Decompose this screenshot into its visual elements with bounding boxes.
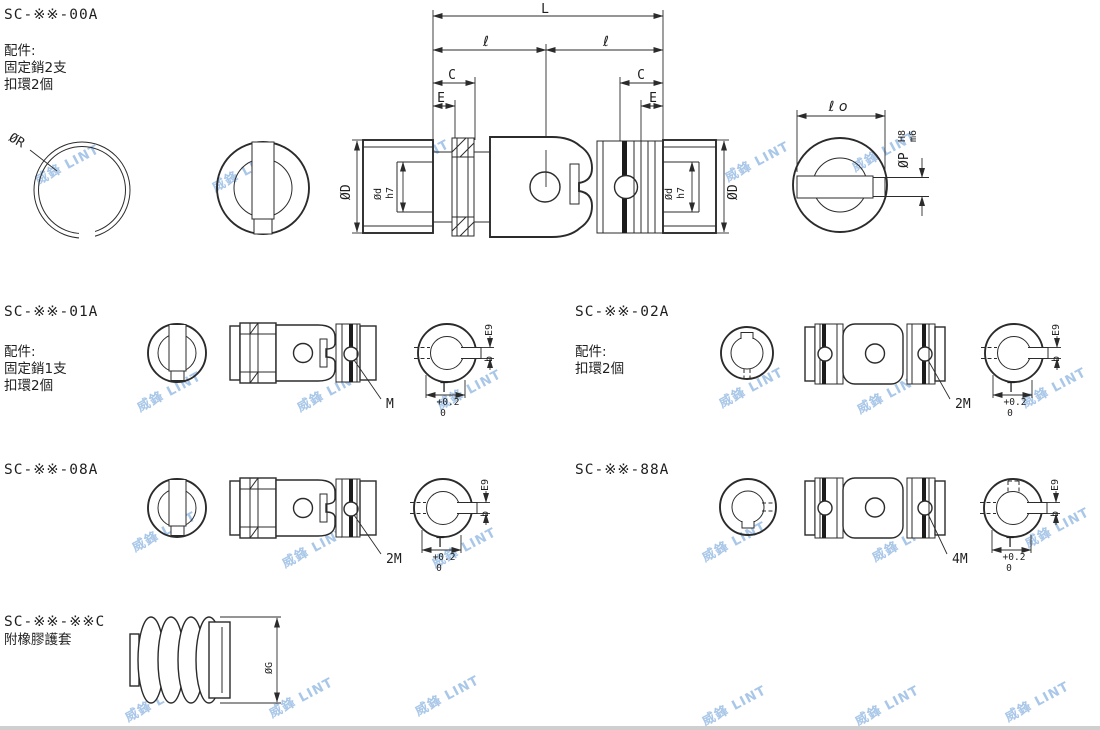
part-code-02a: SC-※※-02A xyxy=(575,304,669,320)
accessories-line2-00a: 扣環2個 xyxy=(4,77,53,93)
callout-02a: 2M xyxy=(955,397,971,412)
dim-label-b: b xyxy=(480,511,491,517)
dim-label-E9: E9 xyxy=(1050,479,1061,491)
accessories-line1-01a: 固定銷1支 xyxy=(4,361,67,377)
part-code-88a: SC-※※-88A xyxy=(575,462,669,478)
dim-label-h7-right: h7 xyxy=(676,187,687,199)
dim-tol-zero: 0 xyxy=(440,408,446,419)
hub-end-view-08a xyxy=(148,479,206,537)
watermark: 威鋒 LINT xyxy=(129,508,199,555)
dim-tol-plus: +0.2 xyxy=(1003,552,1026,563)
dim-label-h7-left: h7 xyxy=(385,187,396,199)
snap-ring-view: ØR xyxy=(6,130,130,242)
accessories-line1-02a: 扣環2個 xyxy=(575,361,624,377)
section-08a-labels: SC-※※-08A xyxy=(4,462,98,478)
watermark: 威鋒 LINT xyxy=(32,141,102,188)
dim-label-T: T xyxy=(1006,536,1014,551)
dim-label-diaD-left: ØD xyxy=(339,184,354,200)
watermark: 威鋒 LINT xyxy=(134,368,204,415)
dim-tol-plus: +0.2 xyxy=(1004,397,1027,408)
accessories-line2-01a: 扣環2個 xyxy=(4,378,53,394)
dim-label-diaR: ØR xyxy=(6,130,27,151)
dim-label-L: L xyxy=(541,2,549,17)
dim-label-E-left: E xyxy=(437,91,445,106)
dim-label-diad-right: Ød xyxy=(663,188,675,200)
rubber-boot-view: ØG xyxy=(130,617,281,703)
watermark: 威鋒 LINT xyxy=(722,138,792,185)
dim-label-b: b xyxy=(1051,356,1062,362)
dim-label-T: T xyxy=(436,536,444,551)
watermark: 威鋒 LINT xyxy=(699,518,769,565)
watermark: 威鋒 LINT xyxy=(716,364,786,411)
watermark: 威鋒 LINT xyxy=(1019,364,1089,411)
accessories-title-01a: 配件: xyxy=(4,344,36,360)
accessories-line1-00a: 固定銷2支 xyxy=(4,60,67,76)
dim-tol-plus: +0.2 xyxy=(437,397,460,408)
section-88a-labels: SC-※※-88A xyxy=(575,462,669,478)
keyed-end-view-01a: E9 b T +0.2 0 xyxy=(414,324,495,419)
section-02a-labels: SC-※※-02A 配件: 扣環2個 xyxy=(575,304,669,377)
bore-end-view-02a xyxy=(721,327,773,380)
dim-label-diaG: ØG xyxy=(263,662,275,674)
cad-drawing: 威鋒 LINT 威鋒 LINT 威鋒 LINT 威鋒 LINT 威鋒 LINT … xyxy=(0,0,1100,730)
hub-end-view-01a xyxy=(148,324,206,382)
callout-01a: M xyxy=(386,397,394,412)
dim-tol-zero: 0 xyxy=(436,563,442,574)
dim-label-diad-left: Ød xyxy=(372,188,384,200)
page-bottom-edge xyxy=(0,726,1100,730)
dim-label-lo: ℓ o xyxy=(828,99,848,115)
part-code-c: SC-※※-※※C xyxy=(4,614,105,630)
main-assembly-view: ØD Ød h7 xyxy=(339,137,741,237)
dim-label-C-right: C xyxy=(637,68,645,83)
dim-label-T: T xyxy=(1007,381,1015,396)
part-code-01a: SC-※※-01A xyxy=(4,304,98,320)
dim-label-E-right: E xyxy=(649,91,657,106)
watermark: 威鋒 LINT xyxy=(699,682,769,729)
dim-label-diaD-right: ØD xyxy=(726,184,741,200)
dim-label-E9: E9 xyxy=(480,479,491,491)
dim-tol-plus: +0.2 xyxy=(433,552,456,563)
dim-label-E9: E9 xyxy=(1051,324,1062,336)
bore-end-view-88a xyxy=(720,479,776,535)
accessories-title-02a: 配件: xyxy=(575,344,607,360)
dim-label-H8: H8 xyxy=(897,130,908,142)
section-00a-labels: SC-※※-00A 配件: 固定銷2支 扣環2個 xyxy=(4,7,98,93)
section-01a-labels: SC-※※-01A 配件: 固定銷1支 扣環2個 xyxy=(4,304,98,394)
watermark: 威鋒 LINT xyxy=(1002,678,1072,725)
subtitle-c: 附橡膠護套 xyxy=(4,632,72,648)
dim-label-T: T xyxy=(440,381,448,396)
section-c-labels: SC-※※-※※C 附橡膠護套 xyxy=(4,614,105,648)
callout-08a: 2M xyxy=(386,552,402,567)
watermark: 威鋒 LINT xyxy=(852,682,922,729)
dim-label-m6: m6 xyxy=(908,130,919,142)
dim-tol-zero: 0 xyxy=(1007,408,1013,419)
dim-tol-zero: 0 xyxy=(1006,563,1012,574)
dim-label-b: b xyxy=(1050,511,1061,517)
part-code-08a: SC-※※-08A xyxy=(4,462,98,478)
part-code-00a: SC-※※-00A xyxy=(4,7,98,23)
keyed-end-view-02a: E9 b T +0.2 0 xyxy=(981,324,1062,419)
dim-label-l-right: ℓ xyxy=(602,34,609,50)
watermark: 威鋒 LINT xyxy=(412,672,482,719)
dim-label-C-left: C xyxy=(448,68,456,83)
dim-label-l-left: ℓ xyxy=(482,34,489,50)
dim-label-diaP: ØP xyxy=(897,152,912,168)
dim-label-b: b xyxy=(484,356,495,362)
keyed-end-view-08a: E9 b T +0.2 0 xyxy=(410,479,491,574)
callout-88a: 4M xyxy=(952,552,968,567)
drawing-canvas: 威鋒 LINT 威鋒 LINT 威鋒 LINT 威鋒 LINT 威鋒 LINT … xyxy=(0,0,1100,730)
dim-label-E9: E9 xyxy=(484,324,495,336)
accessories-title-00a: 配件: xyxy=(4,43,36,59)
